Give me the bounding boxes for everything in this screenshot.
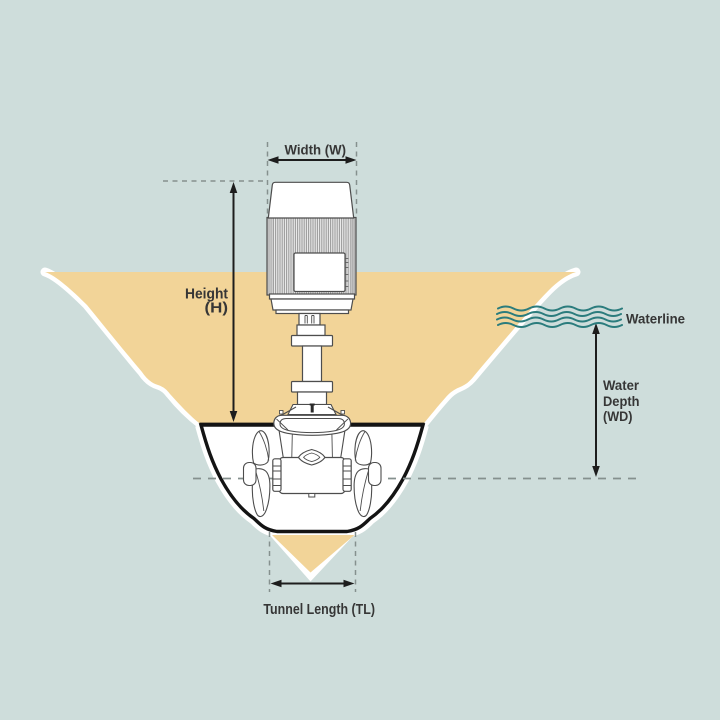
svg-text:Water: Water (603, 377, 640, 393)
svg-text:(WD): (WD) (603, 408, 633, 424)
svg-text:Tunnel Length (TL): Tunnel Length (TL) (263, 601, 375, 618)
svg-text:(H): (H) (205, 301, 229, 317)
svg-text:Depth: Depth (603, 393, 640, 409)
svg-text:Width (W): Width (W) (285, 142, 347, 158)
svg-text:Waterline: Waterline (626, 311, 685, 327)
